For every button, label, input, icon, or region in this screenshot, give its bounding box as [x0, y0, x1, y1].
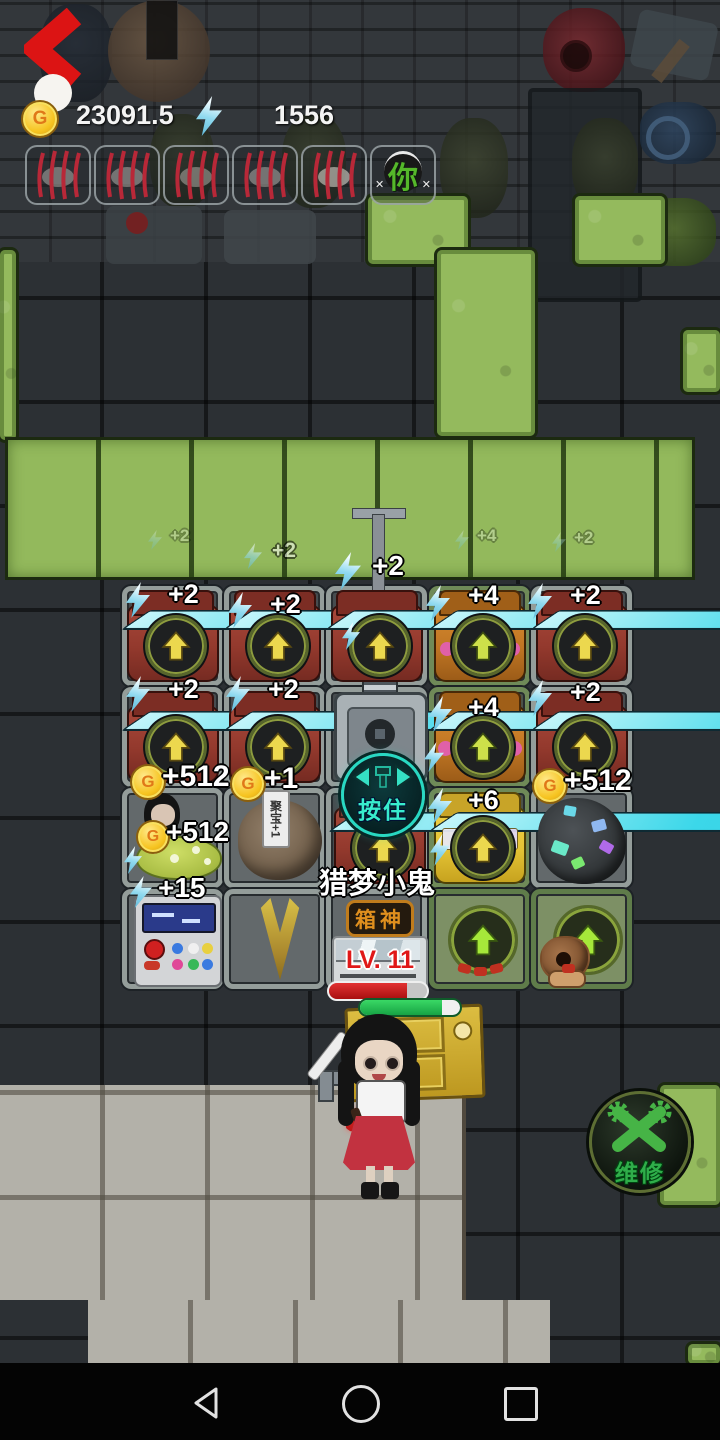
girl-skirt — [343, 1116, 415, 1170]
android-navbar — [0, 1363, 720, 1440]
coin-icon: G — [532, 768, 568, 804]
chest-label: +2 — [168, 579, 199, 610]
energy-reward-label: +15 — [158, 872, 206, 904]
energy-counter: 1556 — [274, 100, 334, 131]
gem — [591, 818, 607, 832]
arcade-pixels — [152, 913, 174, 917]
chest-label: +4 — [468, 692, 499, 723]
claw-marks-icon — [27, 147, 89, 203]
ghost-girl-character[interactable] — [300, 1000, 460, 1210]
arcade-button — [172, 943, 183, 954]
arcade-button — [202, 959, 213, 970]
chest-label: +4 — [468, 580, 499, 611]
chest-label: +6 — [468, 785, 499, 816]
press-hub-core — [375, 729, 385, 739]
arcade-pill — [144, 961, 160, 970]
boss-hp-fill — [329, 983, 407, 999]
slot-character-glyph: 你 — [388, 153, 418, 197]
boulder-tag-dark — [146, 0, 178, 60]
red-creature-eye — [560, 40, 592, 72]
coin-counter: 23091.5 — [76, 100, 174, 131]
item-slot[interactable] — [94, 145, 160, 205]
claw-marks-icon — [303, 147, 365, 203]
coin-glyph: G — [33, 108, 48, 130]
chest-label: +2 — [270, 589, 301, 620]
blue-machine-ring — [646, 116, 690, 160]
girl-eye — [363, 1056, 378, 1071]
boss-name: 猎梦小鬼 — [262, 860, 492, 902]
grass-column — [437, 250, 535, 436]
girl-eye — [385, 1056, 400, 1071]
coin-reward-label: +512 — [162, 760, 230, 794]
boss-level: LV. 11 — [330, 946, 430, 975]
grass-tile — [575, 196, 665, 264]
item-slot[interactable] — [301, 145, 367, 205]
girl-boot — [361, 1182, 379, 1199]
girl-hair-lock — [404, 1060, 420, 1126]
chest-label: +2 — [570, 580, 601, 611]
item-slot-character[interactable]: 你 ✕ ✕ — [370, 145, 436, 205]
gem — [563, 805, 577, 817]
coin-glyph: G — [543, 776, 556, 796]
nav-back-icon[interactable] — [188, 1385, 224, 1421]
valve-wheel — [126, 212, 148, 234]
hold-button-label: 按住 — [358, 791, 408, 825]
mushroom-dot — [170, 854, 179, 863]
chest-label: +2 — [168, 674, 199, 705]
item-slot[interactable] — [163, 145, 229, 205]
bow-mark: ✕ — [422, 178, 431, 191]
grass-tile — [683, 330, 720, 392]
coin-icon: G — [230, 766, 266, 802]
float-text: +4 — [477, 526, 496, 546]
wrench-icon — [604, 1100, 676, 1160]
red-pad — [474, 967, 487, 976]
arcade-button — [188, 943, 199, 954]
arcade-screen — [142, 903, 216, 933]
arcade-button — [202, 943, 213, 954]
nav-home-icon[interactable] — [342, 1385, 380, 1423]
boulder-tag-text: 聚宝+1 — [268, 800, 285, 838]
mushroom-dot — [204, 858, 211, 865]
gem — [550, 840, 569, 857]
upgrade-arrow-icon — [452, 615, 514, 677]
claw-marks-icon — [96, 147, 158, 203]
coin-reward-label: +512 — [166, 816, 229, 848]
arcade-joystick — [144, 939, 165, 960]
arcade-button — [172, 959, 183, 970]
chest-label: +2 — [570, 677, 601, 708]
chest-screen — [529, 610, 720, 630]
nav-recents-icon[interactable] — [504, 1387, 538, 1421]
boulder-paper-tag: 聚宝+1 — [262, 790, 290, 848]
coin-reward-label: +1 — [264, 762, 298, 796]
red-pad — [562, 964, 575, 973]
hold-button[interactable]: 按住 — [341, 753, 425, 837]
float-text: +2 — [272, 539, 296, 563]
coin-glyph: G — [141, 772, 154, 792]
coin-reward-label: +512 — [564, 764, 632, 798]
arcade-machine[interactable] — [134, 895, 222, 987]
float-text: +2 — [574, 528, 593, 548]
stone-floor-strip — [88, 1300, 550, 1364]
coin-icon: G — [136, 820, 170, 854]
upgrade-arrow-icon — [145, 615, 207, 677]
bow-mark: ✕ — [375, 178, 384, 191]
gem — [570, 856, 585, 870]
fork-machine — [224, 210, 316, 264]
coin-glyph: G — [147, 828, 159, 846]
claw-marks-icon — [234, 147, 296, 203]
float-text: +2 — [372, 550, 404, 582]
arcade-button — [188, 959, 199, 970]
chest-label: +2 — [268, 674, 299, 705]
claw-marks-icon — [165, 147, 227, 203]
float-text: +2 — [170, 526, 189, 546]
upgrade-arrow-icon — [247, 615, 309, 677]
gem — [598, 839, 614, 854]
boss-badge: 箱神 — [346, 900, 414, 937]
game-screen: 聚宝+1 — [0, 0, 720, 1440]
grass-corner — [688, 1344, 720, 1364]
girl-boot — [381, 1182, 399, 1199]
upgrade-arrow-icon — [452, 716, 514, 778]
chest-screen — [529, 711, 720, 731]
arcade-pixels — [182, 919, 200, 923]
item-slot[interactable] — [232, 145, 298, 205]
upgrade-arrow-icon — [554, 615, 616, 677]
coin-glyph: G — [241, 774, 254, 794]
repair-button[interactable]: 维修 — [589, 1091, 691, 1193]
item-slot[interactable] — [25, 145, 91, 205]
upgrade-arrow-icon — [349, 615, 411, 677]
coin-icon: G — [130, 764, 166, 800]
repair-button-label: 维修 — [615, 1154, 665, 1188]
hold-arrows-icon — [352, 763, 414, 791]
coin-currency-icon: G — [21, 100, 59, 138]
valve-machine — [106, 206, 202, 264]
grass-edge — [0, 250, 16, 440]
